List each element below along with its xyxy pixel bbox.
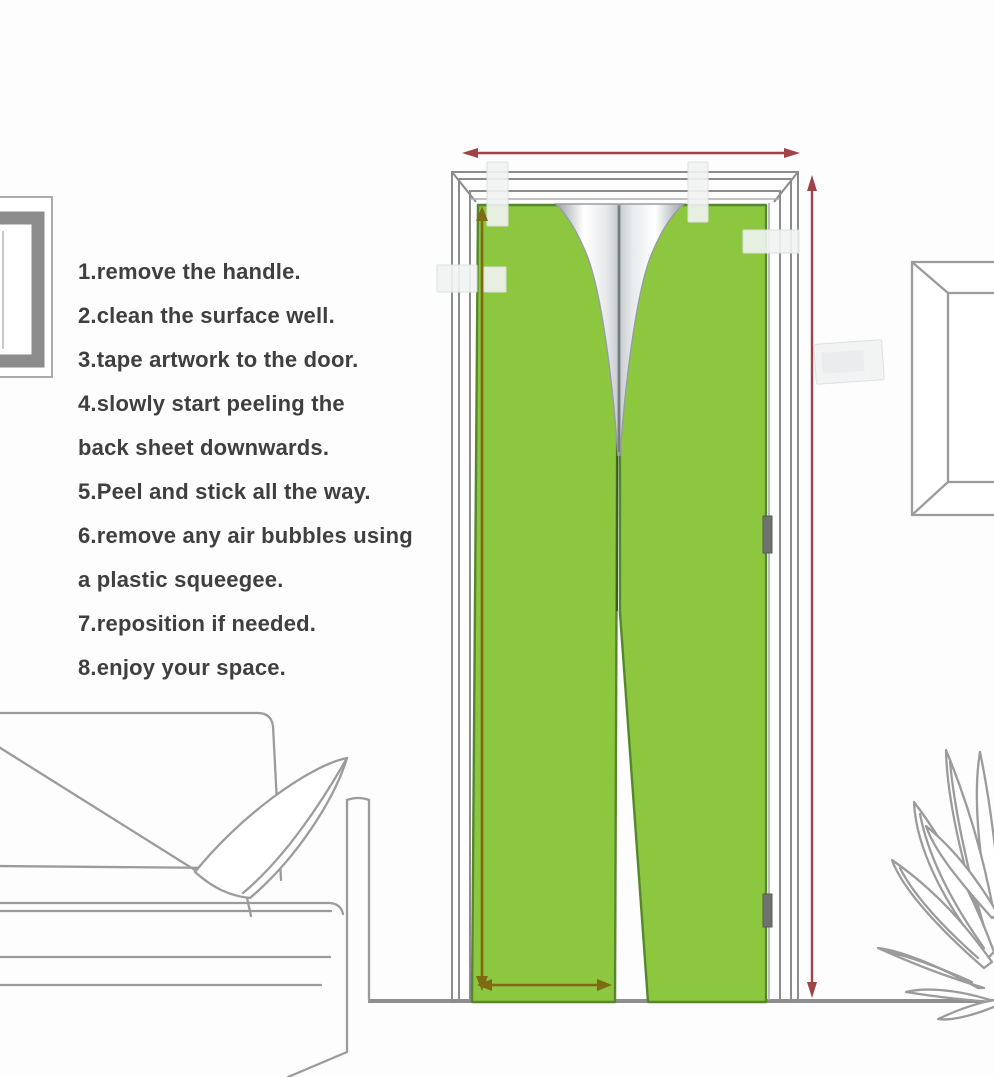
instruction-step: 4.slowly start peeling the: [78, 382, 458, 426]
tape-top-right: [688, 162, 708, 222]
hinge-upper: [763, 516, 772, 553]
picture-frame-right: [912, 262, 994, 515]
instruction-step: 6.remove any air bubbles using: [78, 514, 458, 558]
instruction-step: 2.clean the surface well.: [78, 294, 458, 338]
instruction-step: 5.Peel and stick all the way.: [78, 470, 458, 514]
instruction-step-wrap: back sheet downwards.: [78, 426, 458, 470]
tape-left-inner: [484, 267, 506, 292]
pillow: [195, 758, 347, 898]
armrest-top: [347, 798, 369, 800]
instruction-step-wrap: a plastic squeegee.: [78, 558, 458, 602]
plant: [878, 750, 994, 1019]
sofa: [0, 713, 369, 1077]
sticker-panel-right: [620, 205, 766, 1002]
sticker-panel-left: [472, 205, 618, 1002]
installation-diagram: 1.remove the handle. 2.clean the surface…: [0, 0, 994, 1077]
picture-frame-left: [0, 197, 52, 377]
tape-right-upper: [743, 230, 799, 253]
back-cushion-line: [0, 744, 214, 882]
frame-bevel-left: [452, 172, 476, 202]
instruction-list: 1.remove the handle. 2.clean the surface…: [78, 250, 458, 690]
instruction-step: 8.enjoy your space.: [78, 646, 458, 690]
tape-right-middle: [814, 340, 885, 385]
frame-bevel-right: [774, 172, 798, 202]
instruction-step: 7.reposition if needed.: [78, 602, 458, 646]
instruction-step: 3.tape artwork to the door.: [78, 338, 458, 382]
hinge-lower: [763, 894, 772, 927]
instruction-step: 1.remove the handle.: [78, 250, 458, 294]
tape-top-left: [487, 162, 508, 226]
